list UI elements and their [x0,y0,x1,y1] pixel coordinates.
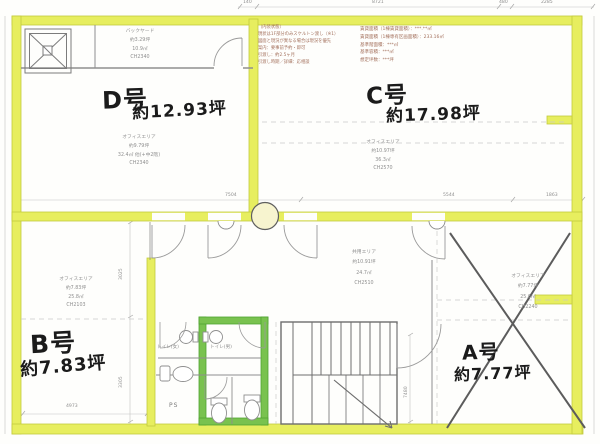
wall-bottom [12,424,583,434]
room-name: オフィスエリア [93,134,185,143]
unit-d-info: オフィスエリア 約9.79坪 32.4㎡ 他(+中2階) CH2340 [93,134,185,169]
wall-b-right [147,258,155,426]
stairs [281,322,397,428]
door-backyard [214,38,242,66]
room-ceiling: CH2103 [30,302,122,311]
floor-plan-page: 140 8721 480 2285 7504 5544 1863 4973 30… [0,0,600,444]
room-sqm: 10.9㎡ [95,46,185,55]
unit-c-area: 約17.98坪 [386,98,482,126]
room-sqm: 25.8㎡ [30,294,122,303]
green-wall-right [261,317,268,425]
dim-top-480: 480 [499,0,508,5]
room-sqm: 25.6㎡ [482,293,574,303]
room-sqm: 36.3㎡ [337,157,429,166]
dim-b-height-lower: 3305 [119,376,124,388]
toilet-women-label: トイレ(女) [157,344,179,350]
unit-a-area: 約7.77坪 [454,359,532,386]
unit-d-area: 約12.93坪 [131,94,227,124]
note-line: 案内：要事前予約・即可 [258,45,358,52]
wall-right [572,16,582,434]
round-column [252,203,279,230]
note-line: （内装状態） [258,24,358,31]
room-tsubo: 約7.83坪 [30,285,122,294]
note-line: 想定坪数：***坪 [360,57,510,65]
unit-a-cross [447,233,585,428]
note-area-summary: 賃貸面積（1棟賃貸面積）：***.**㎡ 賃貸面積（1棟専有区画面積）：233.… [360,26,510,65]
room-tsubo: 約7.77坪 [482,282,574,292]
room-name: オフィスエリア [482,272,574,282]
wall-right-stub [547,116,572,124]
elevator [25,29,71,73]
room-name: オフィスエリア [337,139,429,148]
dim-mid-1863: 1863 [546,193,558,198]
dim-b-width: 4973 [66,404,78,409]
room-ceiling: CH2340 [95,54,185,63]
door-unit-b [152,225,185,258]
common-area-info: 共用エリア 約10.91坪 24.7㎡ CH2510 [318,248,410,290]
note-line: 賃貸面積（1棟専有区画面積）：233.16㎡ [360,34,510,42]
room-tsubo: 約10.97坪 [337,148,429,157]
toilet-men-label: トイレ(男) [210,344,232,350]
sink-men [210,331,223,344]
dim-top-2285: 2285 [541,0,553,5]
wall-divider-cd [249,19,258,219]
room-ceiling: CH2240 [482,303,574,313]
toilet-bowl-south-1 [212,403,227,423]
toilet-bowl-south-2 [245,400,260,420]
toilet-bowl-west [173,367,193,382]
door-common [412,226,445,259]
green-wall-bottom [199,418,268,425]
dim-top-140: 140 [243,0,252,5]
note-line: 引渡し時期／詳細：応相談 [258,59,358,66]
door-unit-d [208,225,241,258]
dim-mid-7504: 7504 [225,193,237,198]
dim-stair-height: 7480 [404,386,409,398]
unit-a-info: オフィスエリア 約7.77坪 25.6㎡ CH2240 [482,272,574,314]
green-wall-top [199,317,268,324]
note-line: 引渡し：約2.5ヶ月 [258,52,358,59]
note-line: 賃貸面積（1棟賃貸面積）：***.**㎡ [360,26,510,34]
unit-c-info: オフィスエリア 約10.97坪 36.3㎡ CH2570 [337,139,429,174]
room-ceiling: CH2510 [318,279,410,289]
note-line: 基準階面積：***㎡ [360,42,510,50]
note-line: 図面と現況が異なる場合は現況を優先 [258,38,358,45]
backyard-info: バックヤード 約3.29坪 10.9㎡ CH2340 [95,28,185,63]
room-name: バックヤード [95,28,185,37]
room-sqm: 24.7㎡ [318,269,410,279]
note-line: 基準容積：***㎡ [360,49,510,57]
note-interior-conditions: （内装状態） 現状は1F部分のみスケルトン渡し（※1） 図面と現況が異なる場合は… [258,24,358,66]
room-tsubo: 約10.91坪 [318,258,410,268]
door-stairhall [397,324,441,368]
dim-top-8721: 8721 [372,0,384,5]
room-tsubo: 約9.79坪 [93,143,185,152]
room-ceiling: CH2570 [337,165,429,174]
room-tsubo: 約3.29坪 [95,37,185,46]
room-sqm: 32.4㎡ 他(+中2階) [93,152,185,161]
note-line: 現状は1F部分のみスケルトン渡し（※1） [258,31,358,38]
room-ceiling: CH2340 [93,160,185,169]
unit-b-info: オフィスエリア 約7.83坪 25.8㎡ CH2103 [30,276,122,311]
door-unit-c [284,225,317,258]
dim-mid-5544: 5544 [443,193,455,198]
pipe-space-label: PS [169,402,178,409]
room-name: オフィスエリア [30,276,122,285]
room-name: 共用エリア [318,248,410,258]
